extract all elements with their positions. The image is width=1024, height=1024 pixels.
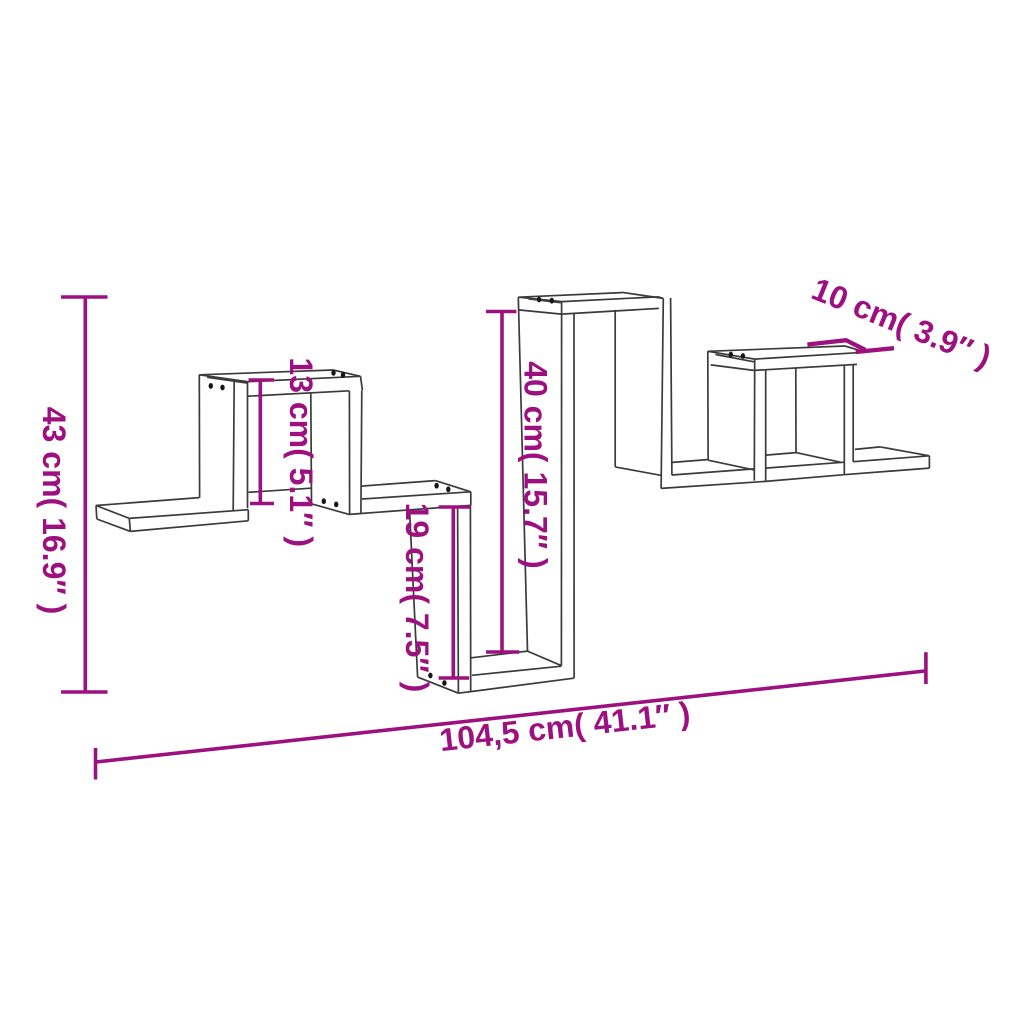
svg-text:19 cm( 7.5″ ): 19 cm( 7.5″ )	[399, 503, 435, 693]
svg-text:40 cm( 15.7″ ): 40 cm( 15.7″ )	[518, 361, 554, 568]
svg-text:43 cm( 16.9″ ): 43 cm( 16.9″ )	[36, 407, 72, 614]
svg-text:13 cm( 5.1″ ): 13 cm( 5.1″ )	[283, 357, 319, 547]
